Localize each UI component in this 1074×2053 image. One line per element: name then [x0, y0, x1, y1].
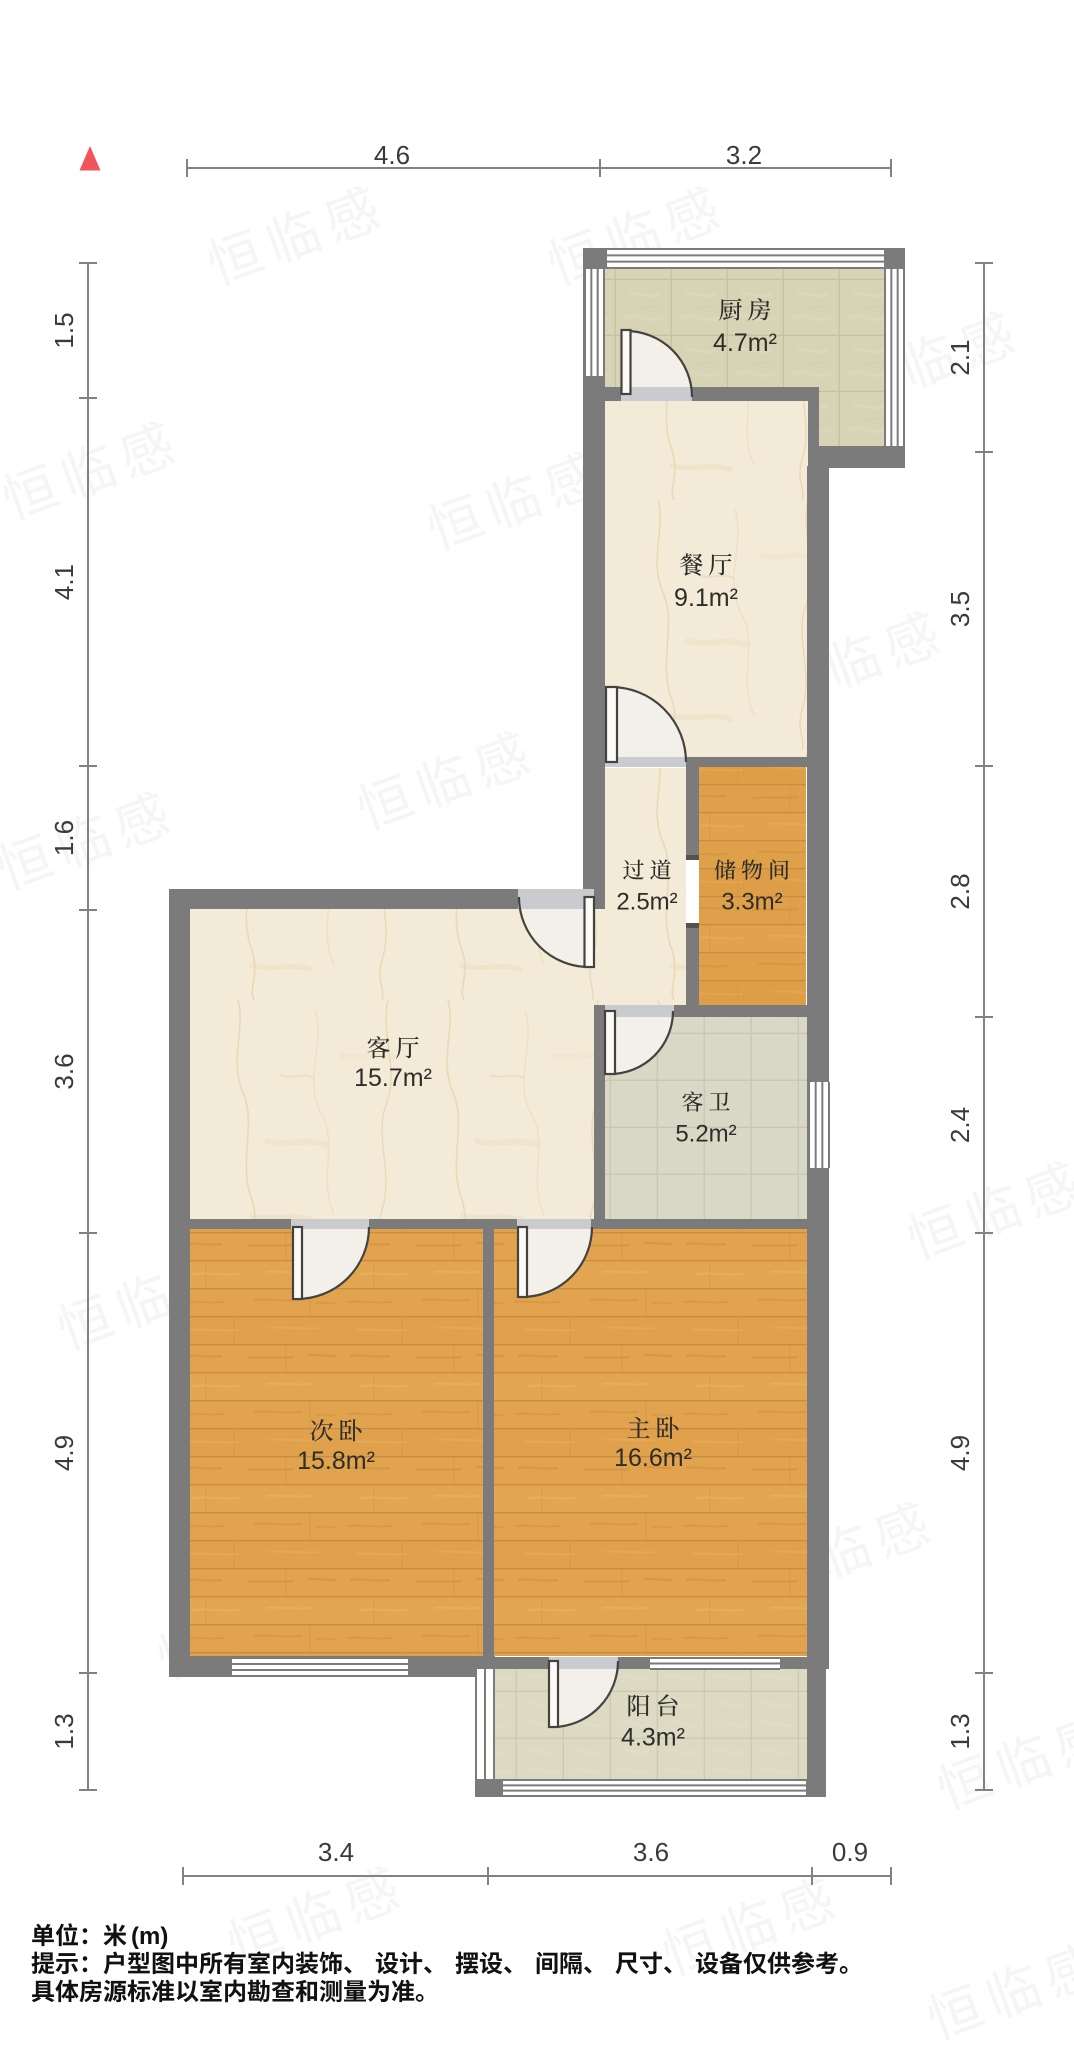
svg-text:16.6m²: 16.6m² — [614, 1444, 692, 1472]
svg-text:4.9: 4.9 — [945, 1435, 975, 1471]
svg-text:0.9: 0.9 — [832, 1837, 868, 1867]
svg-text:1.6: 1.6 — [49, 820, 79, 856]
svg-text:3.6: 3.6 — [633, 1837, 669, 1867]
svg-text:1.3: 1.3 — [49, 1713, 79, 1749]
svg-text:1.5: 1.5 — [49, 312, 79, 348]
svg-text:3.5: 3.5 — [945, 591, 975, 627]
svg-text:2.4: 2.4 — [945, 1107, 975, 1143]
svg-text:4.9: 4.9 — [49, 1435, 79, 1471]
svg-text:(m): (m) — [131, 1923, 168, 1950]
svg-text:4.3m²: 4.3m² — [621, 1724, 685, 1752]
svg-text:3.3m²: 3.3m² — [721, 889, 782, 916]
svg-text:2.5m²: 2.5m² — [616, 889, 677, 916]
svg-text:4.7m²: 4.7m² — [713, 329, 777, 357]
svg-text:4.6: 4.6 — [374, 140, 410, 170]
svg-text:3.2: 3.2 — [726, 140, 762, 170]
svg-text:3.6: 3.6 — [49, 1053, 79, 1089]
svg-text:2.1: 2.1 — [945, 339, 975, 375]
svg-text:15.7m²: 15.7m² — [354, 1064, 432, 1092]
svg-text:4.1: 4.1 — [49, 564, 79, 600]
svg-text:15.8m²: 15.8m² — [297, 1447, 375, 1475]
svg-text:1.3: 1.3 — [945, 1713, 975, 1749]
svg-text:2.8: 2.8 — [945, 873, 975, 909]
svg-text:5.2m²: 5.2m² — [675, 1121, 736, 1148]
svg-text:3.4: 3.4 — [318, 1837, 354, 1867]
svg-text:9.1m²: 9.1m² — [674, 584, 738, 612]
